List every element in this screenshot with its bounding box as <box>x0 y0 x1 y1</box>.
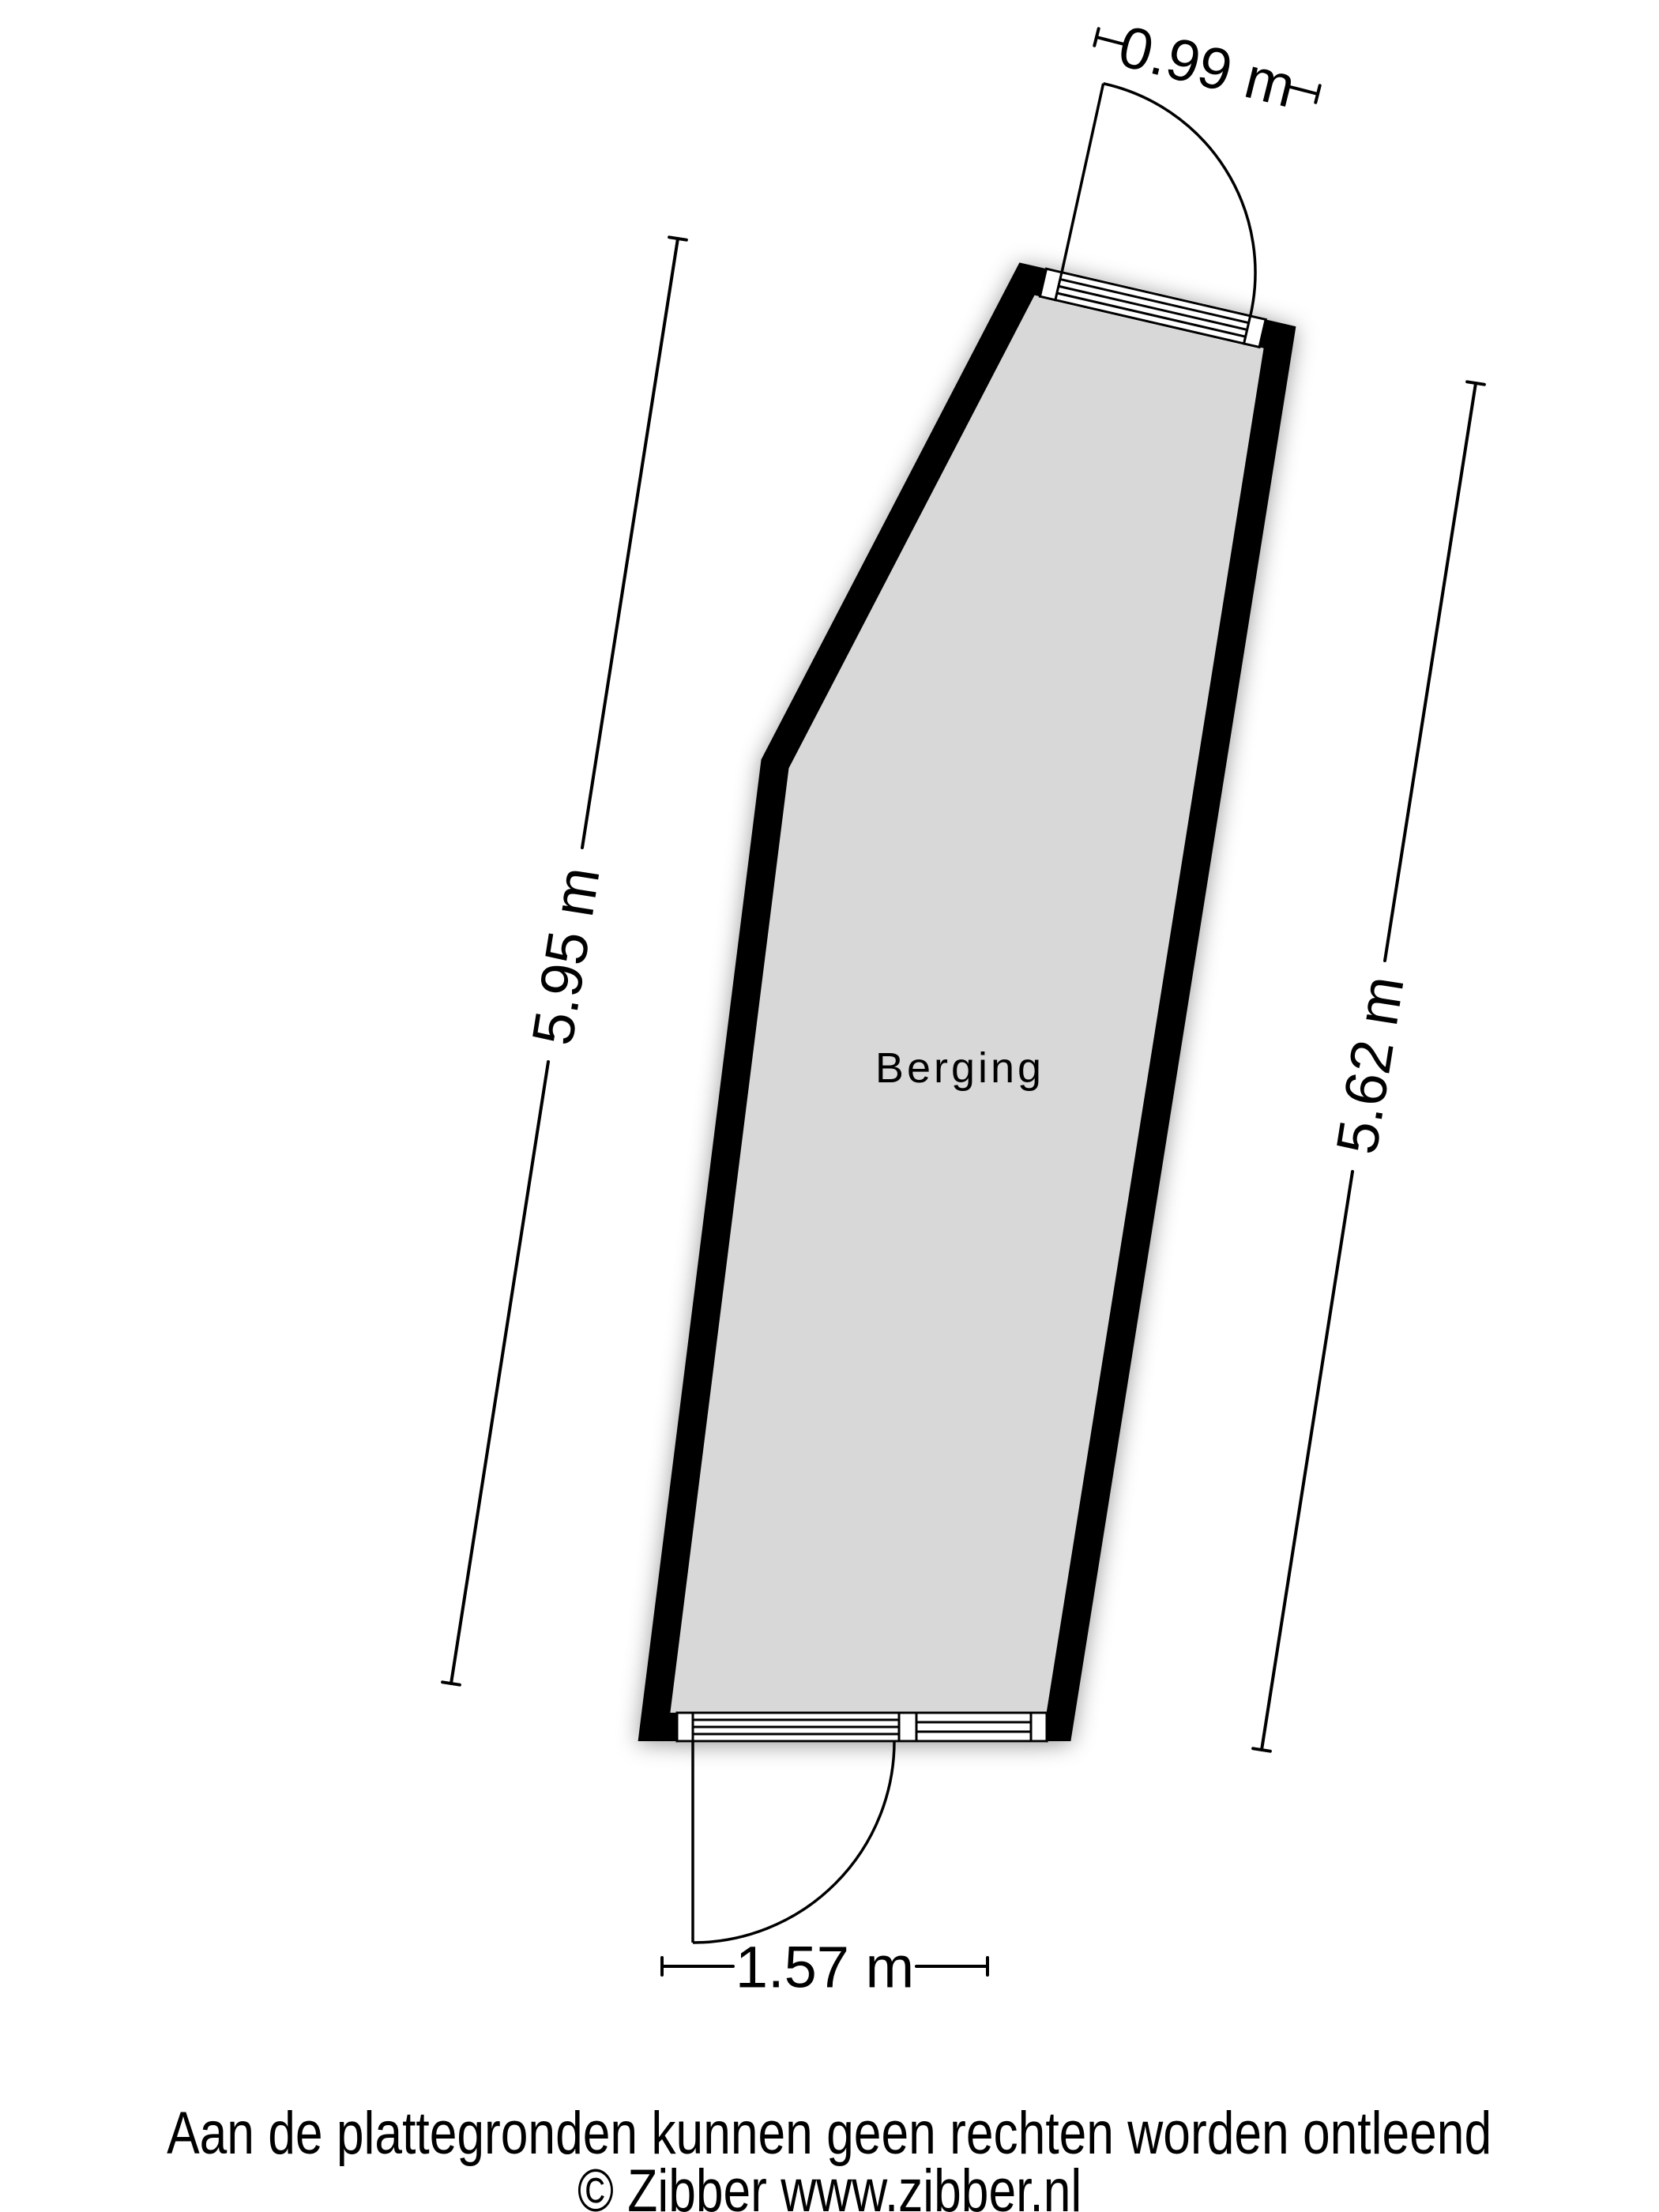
dim-bottom-label: 1.57 m <box>735 1935 914 2000</box>
top-door-leaf <box>1062 84 1104 273</box>
floorplan-page: 0.99 m 5.95 m 5.62 m 1.57 m Berging <box>0 0 1659 2212</box>
dim-right-segment-bottom <box>1262 1172 1352 1750</box>
dim-left-label: 5.95 m <box>519 863 611 1049</box>
bottom-right-jamb <box>1031 1713 1047 1741</box>
dim-right-segment-top <box>1385 383 1476 961</box>
footer: Aan de plattegronden kunnen geen rechten… <box>0 2105 1659 2212</box>
dim-left-tick-top <box>669 237 687 239</box>
dim-top-tick-right <box>1315 85 1319 102</box>
bottom-center-post <box>899 1713 916 1741</box>
dim-top-label: 0.99 m <box>1112 13 1302 119</box>
dim-top-segment-right <box>1290 87 1318 94</box>
top-door-swing-arc <box>1104 84 1255 316</box>
dimension-bottom: 1.57 m <box>662 1935 987 2000</box>
dimension-top: 0.99 m <box>1094 13 1319 119</box>
floorplan-canvas: 0.99 m 5.95 m 5.62 m 1.57 m Berging <box>0 0 1659 2212</box>
dim-top-segment-left <box>1097 37 1124 44</box>
dimension-left: 5.95 m <box>442 237 687 1684</box>
dimension-right: 5.62 m <box>1253 382 1484 1751</box>
dim-right-label: 5.62 m <box>1323 972 1416 1158</box>
walls-shadow-group <box>654 267 1280 1743</box>
bottom-window-panel <box>916 1713 1031 1741</box>
footer-copyright-text: © Zibber www.zibber.nl <box>577 2162 1082 2212</box>
dim-left-segment-top <box>582 239 678 848</box>
bottom-opening <box>677 1711 1047 1743</box>
dim-left-segment-bottom <box>451 1062 548 1683</box>
footer-disclaimer-line: Aan de plattegronden kunnen geen rechten… <box>0 2105 1659 2162</box>
footer-disclaimer-text: Aan de plattegronden kunnen geen rechten… <box>167 2105 1492 2162</box>
footer-copyright-line: © Zibber www.zibber.nl <box>0 2162 1659 2212</box>
bottom-left-jamb <box>677 1713 693 1741</box>
dim-top-tick-left <box>1094 28 1098 45</box>
room-label: Berging <box>875 1044 1044 1092</box>
room-walls <box>654 279 1280 1727</box>
dim-right-tick-top <box>1467 382 1484 384</box>
bottom-door-swing-arc <box>693 1741 894 1943</box>
dim-right-tick-bottom <box>1253 1748 1270 1751</box>
dim-left-tick-bottom <box>442 1682 460 1684</box>
